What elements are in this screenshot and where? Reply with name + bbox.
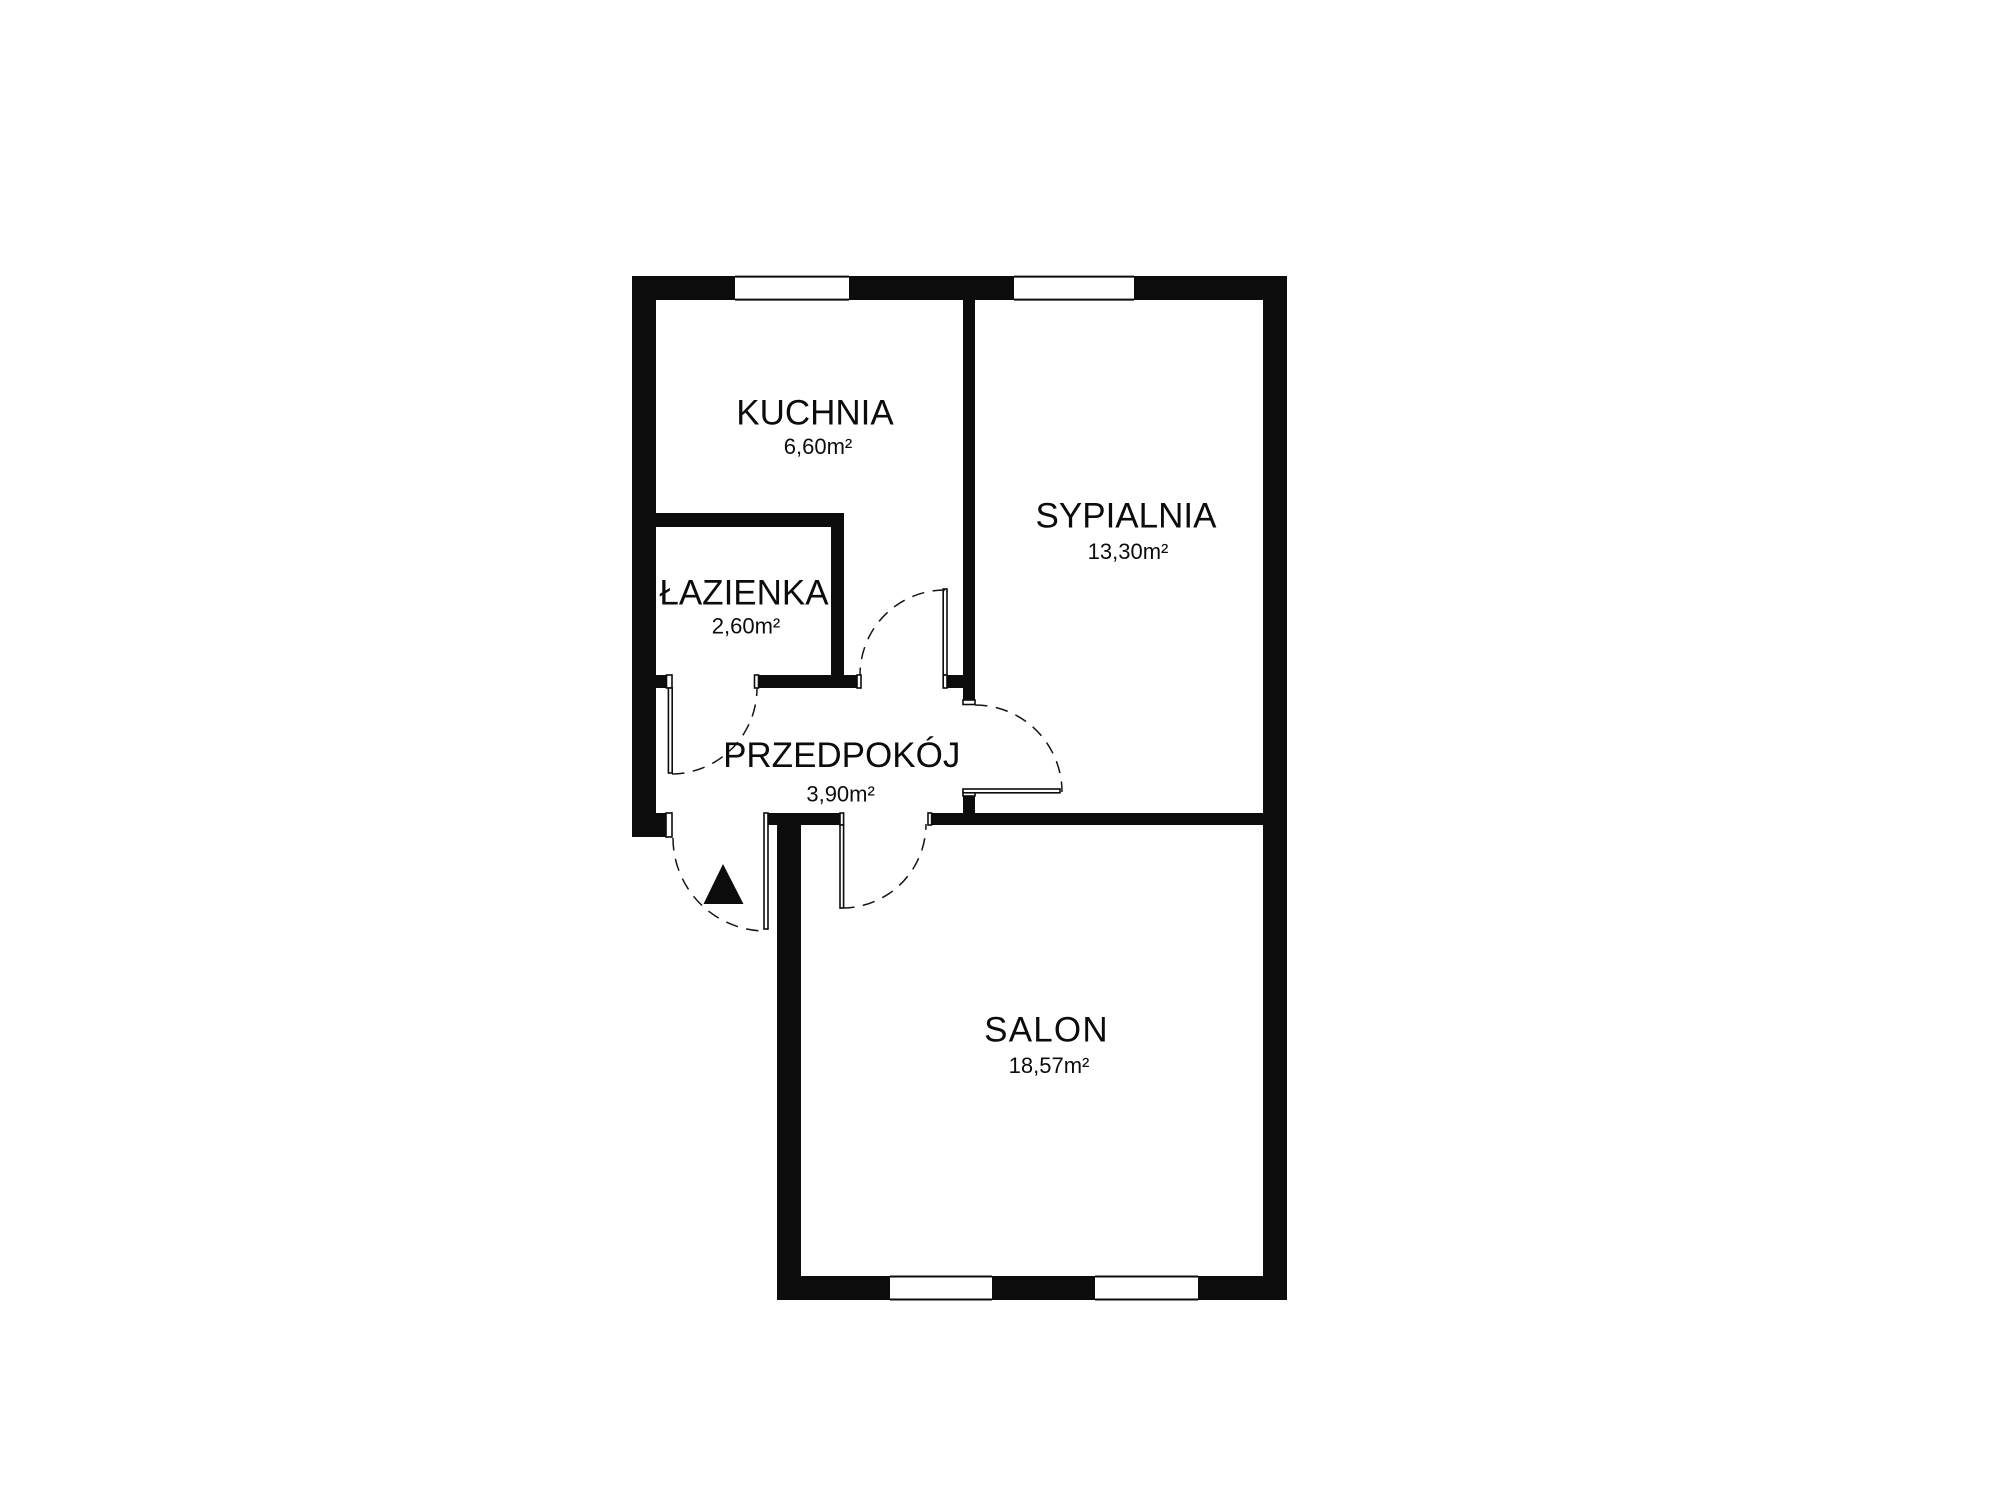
svg-text:PRZEDPOKÓJ: PRZEDPOKÓJ: [723, 736, 960, 775]
svg-text:SYPIALNIA: SYPIALNIA: [1036, 497, 1218, 536]
svg-text:2,60m²: 2,60m²: [712, 614, 780, 639]
svg-text:3,90m²: 3,90m²: [806, 782, 874, 807]
svg-text:18,57m²: 18,57m²: [1009, 1053, 1090, 1078]
svg-text:6,60m²: 6,60m²: [784, 434, 852, 459]
svg-text:13,30m²: 13,30m²: [1088, 539, 1169, 564]
svg-text:ŁAZIENKA: ŁAZIENKA: [659, 574, 829, 613]
svg-text:KUCHNIA: KUCHNIA: [736, 394, 894, 433]
svg-text:SALON: SALON: [984, 1011, 1109, 1050]
